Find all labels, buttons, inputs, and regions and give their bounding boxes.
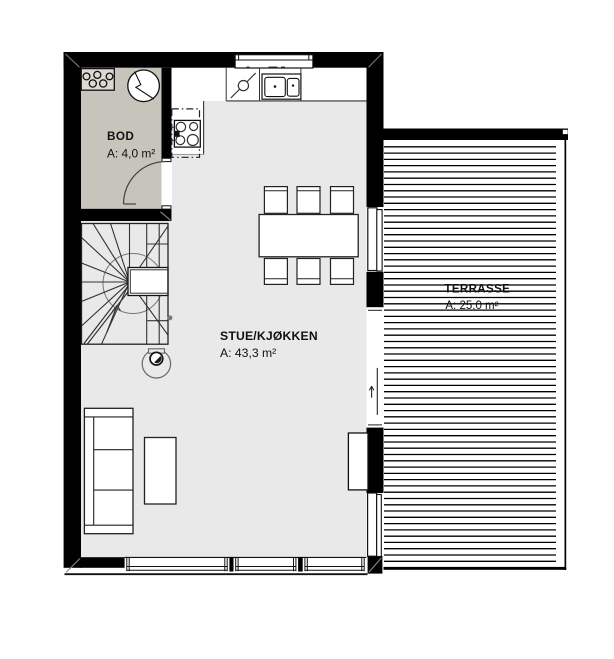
svg-text:BOD: BOD xyxy=(107,130,134,143)
svg-text:A: 25,0 m²: A: 25,0 m² xyxy=(445,300,498,312)
svg-text:A: 4,0 m²: A: 4,0 m² xyxy=(107,147,155,161)
svg-text:A: 43,3 m²: A: 43,3 m² xyxy=(220,346,276,360)
svg-text:TERRASSE: TERRASSE xyxy=(444,284,510,296)
svg-text:STUE/KJØKKEN: STUE/KJØKKEN xyxy=(220,329,318,343)
